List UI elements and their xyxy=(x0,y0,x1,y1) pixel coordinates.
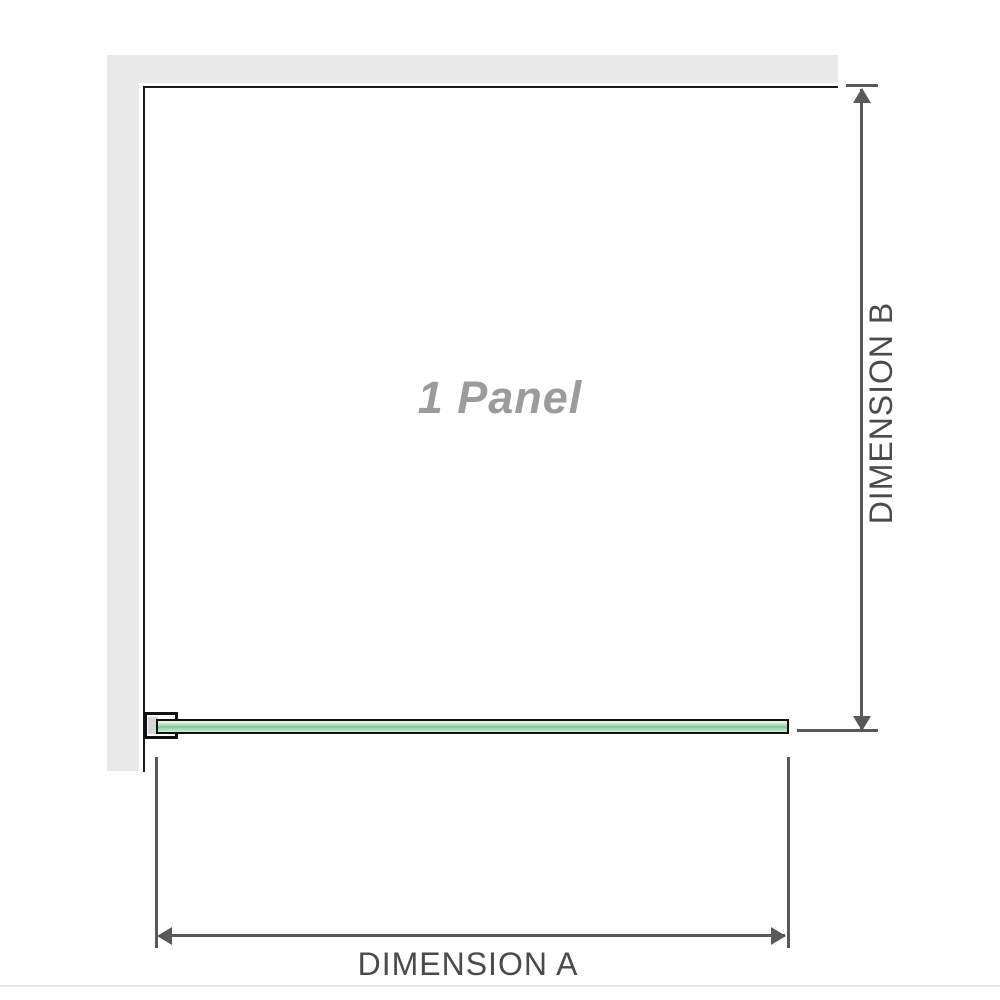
dimension-b-top-tick xyxy=(846,84,878,87)
dimension-a-extension-right xyxy=(787,757,790,948)
wall-top-bar xyxy=(107,55,838,83)
dimension-a-line xyxy=(160,934,785,937)
panel-outline-left xyxy=(143,86,145,772)
glass-panel-bar xyxy=(156,719,789,734)
panel-dimension-diagram: 1 Panel DIMENSION B DIMENSION A xyxy=(0,0,1000,1000)
panel-count-label: 1 Panel xyxy=(350,372,650,424)
arrowhead-up-icon xyxy=(853,88,871,103)
arrowhead-down-icon xyxy=(853,716,871,731)
arrowhead-right-icon xyxy=(771,927,786,945)
dimension-a-extension-left xyxy=(155,757,158,948)
wall-left-bar xyxy=(107,55,139,771)
dimension-a-label: DIMENSION A xyxy=(268,946,668,983)
arrowhead-left-icon xyxy=(157,927,172,945)
bottom-divider xyxy=(0,985,1000,987)
panel-outline-top xyxy=(143,86,838,88)
dimension-b-label: DIMENSION B xyxy=(863,263,899,563)
